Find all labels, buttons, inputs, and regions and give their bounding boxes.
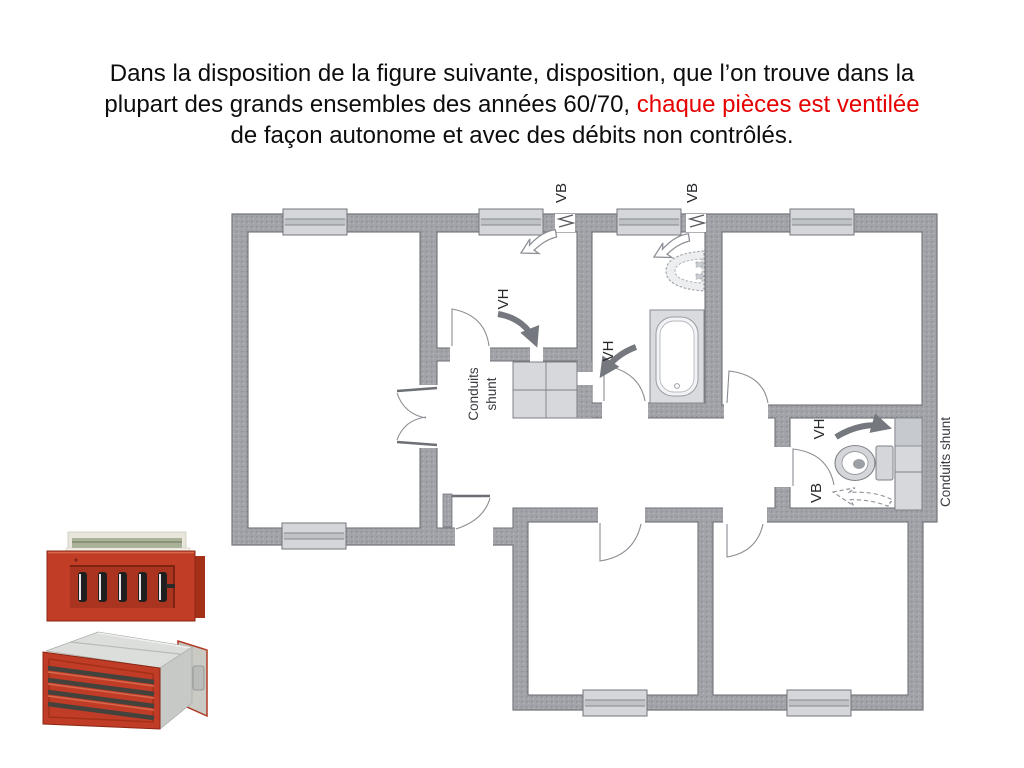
room-bedroom-bottom-left	[528, 522, 698, 695]
label-vh-kitchen: VH	[495, 289, 512, 310]
label-vh-wc: VH	[811, 419, 828, 440]
label-conduits-shunt-kitchen-2: shunt	[484, 377, 499, 410]
room-bedroom-bottom-right	[713, 522, 908, 695]
label-vb-wc: VB	[808, 483, 825, 503]
opening-wc-door	[773, 447, 792, 487]
shunt-duct-kitchen	[513, 362, 577, 418]
extraction-grille-perspective-photo	[43, 632, 207, 729]
label-vh-bathroom: VH	[600, 341, 617, 362]
opening-bedroom-tr-door	[724, 403, 768, 420]
opening-kitchen-vent	[530, 346, 543, 363]
shunt-duct-wc	[895, 418, 922, 510]
window	[283, 209, 347, 235]
room-bedroom-top-right	[722, 232, 922, 405]
window	[617, 209, 681, 235]
extraction-grille-front-photo	[47, 532, 205, 621]
opening-bathroom-door	[602, 401, 648, 419]
opening-entry-door	[455, 526, 493, 547]
room-living	[248, 232, 420, 528]
label-conduits-shunt-wc: Conduits shunt	[938, 417, 953, 507]
bathtub	[650, 310, 704, 403]
label-conduits-shunt-kitchen-1: Conduits	[466, 367, 481, 421]
window	[583, 690, 647, 716]
wall-kitchen-bathroom	[577, 361, 592, 418]
product-photos	[43, 532, 207, 729]
window	[479, 209, 543, 235]
window	[790, 209, 854, 235]
floor-plan: VB VB VH VH VH VB Conduits shunt Conduit…	[232, 183, 953, 716]
label-vb-right: VB	[684, 183, 701, 203]
figure-canvas: VB VB VH VH VH VB Conduits shunt Conduit…	[0, 0, 1024, 768]
label-vb-left: VB	[553, 183, 570, 203]
wall-vestibule-stub	[443, 494, 452, 527]
opening-bedroom-bl-door	[598, 506, 645, 524]
opening-bathroom-vent	[575, 372, 594, 385]
window	[282, 523, 346, 549]
opening-bedroom-br-door	[723, 506, 767, 524]
opening-kitchen-door	[450, 346, 490, 363]
toilet	[835, 446, 893, 481]
window	[787, 690, 851, 716]
